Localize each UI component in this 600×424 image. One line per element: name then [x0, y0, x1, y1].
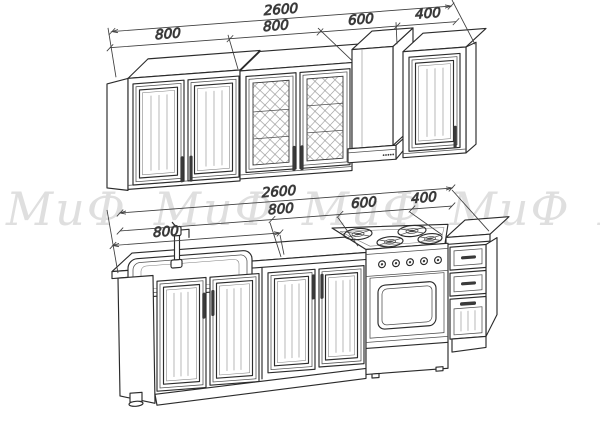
cabinet-door: [188, 76, 239, 181]
cabinet-door: [157, 278, 206, 392]
drawer-cabinet-top: [446, 217, 509, 238]
svg-text:2600: 2600: [264, 1, 298, 20]
svg-text:800: 800: [155, 25, 181, 43]
wall-cabinet-left-800: [107, 50, 260, 192]
svg-text:600: 600: [348, 11, 374, 29]
drawer-1: [450, 244, 486, 270]
stove-foot: [372, 374, 379, 379]
stove-foot: [436, 367, 443, 372]
lattice-glass-door: [300, 69, 350, 169]
drawer-cabinet-400: [446, 217, 509, 353]
door-handle: [320, 274, 323, 299]
base-cabinet-800: [268, 259, 366, 372]
door-handle: [189, 156, 192, 182]
door-handle: [211, 290, 214, 316]
cabinet-door: [409, 53, 460, 151]
door-handle: [180, 156, 183, 182]
svg-text:600: 600: [351, 194, 377, 212]
drawer-cabinet-door: [450, 296, 486, 339]
cabinet-door: [268, 269, 315, 373]
svg-text:800: 800: [263, 17, 289, 35]
upper-cabinets-row: [107, 22, 486, 191]
drawer-2: [450, 270, 486, 296]
kitchen-technical-drawing: МиФ МиФ МиФ МиФ МиФ: [0, 0, 600, 424]
adjustable-foot: [129, 392, 143, 407]
cabinet-door: [319, 266, 364, 367]
door-handle: [454, 126, 457, 148]
door-handle: [312, 274, 315, 299]
plinth: [452, 336, 486, 352]
lattice-glass-door: [246, 73, 296, 173]
door-handle: [292, 146, 295, 171]
svg-text:400: 400: [415, 5, 441, 23]
cabinet-door: [210, 274, 259, 386]
svg-text:800: 800: [268, 200, 294, 218]
kitchen-line-drawing: 2600 800 800 600 400: [0, 0, 600, 424]
svg-text:800: 800: [153, 223, 179, 241]
wall-cabinet-right-400: [403, 28, 486, 157]
door-handle: [202, 293, 205, 319]
door-handle: [300, 145, 303, 170]
svg-text:2600: 2600: [262, 183, 296, 202]
svg-text:400: 400: [411, 189, 437, 207]
cabinet-door: [133, 80, 184, 185]
